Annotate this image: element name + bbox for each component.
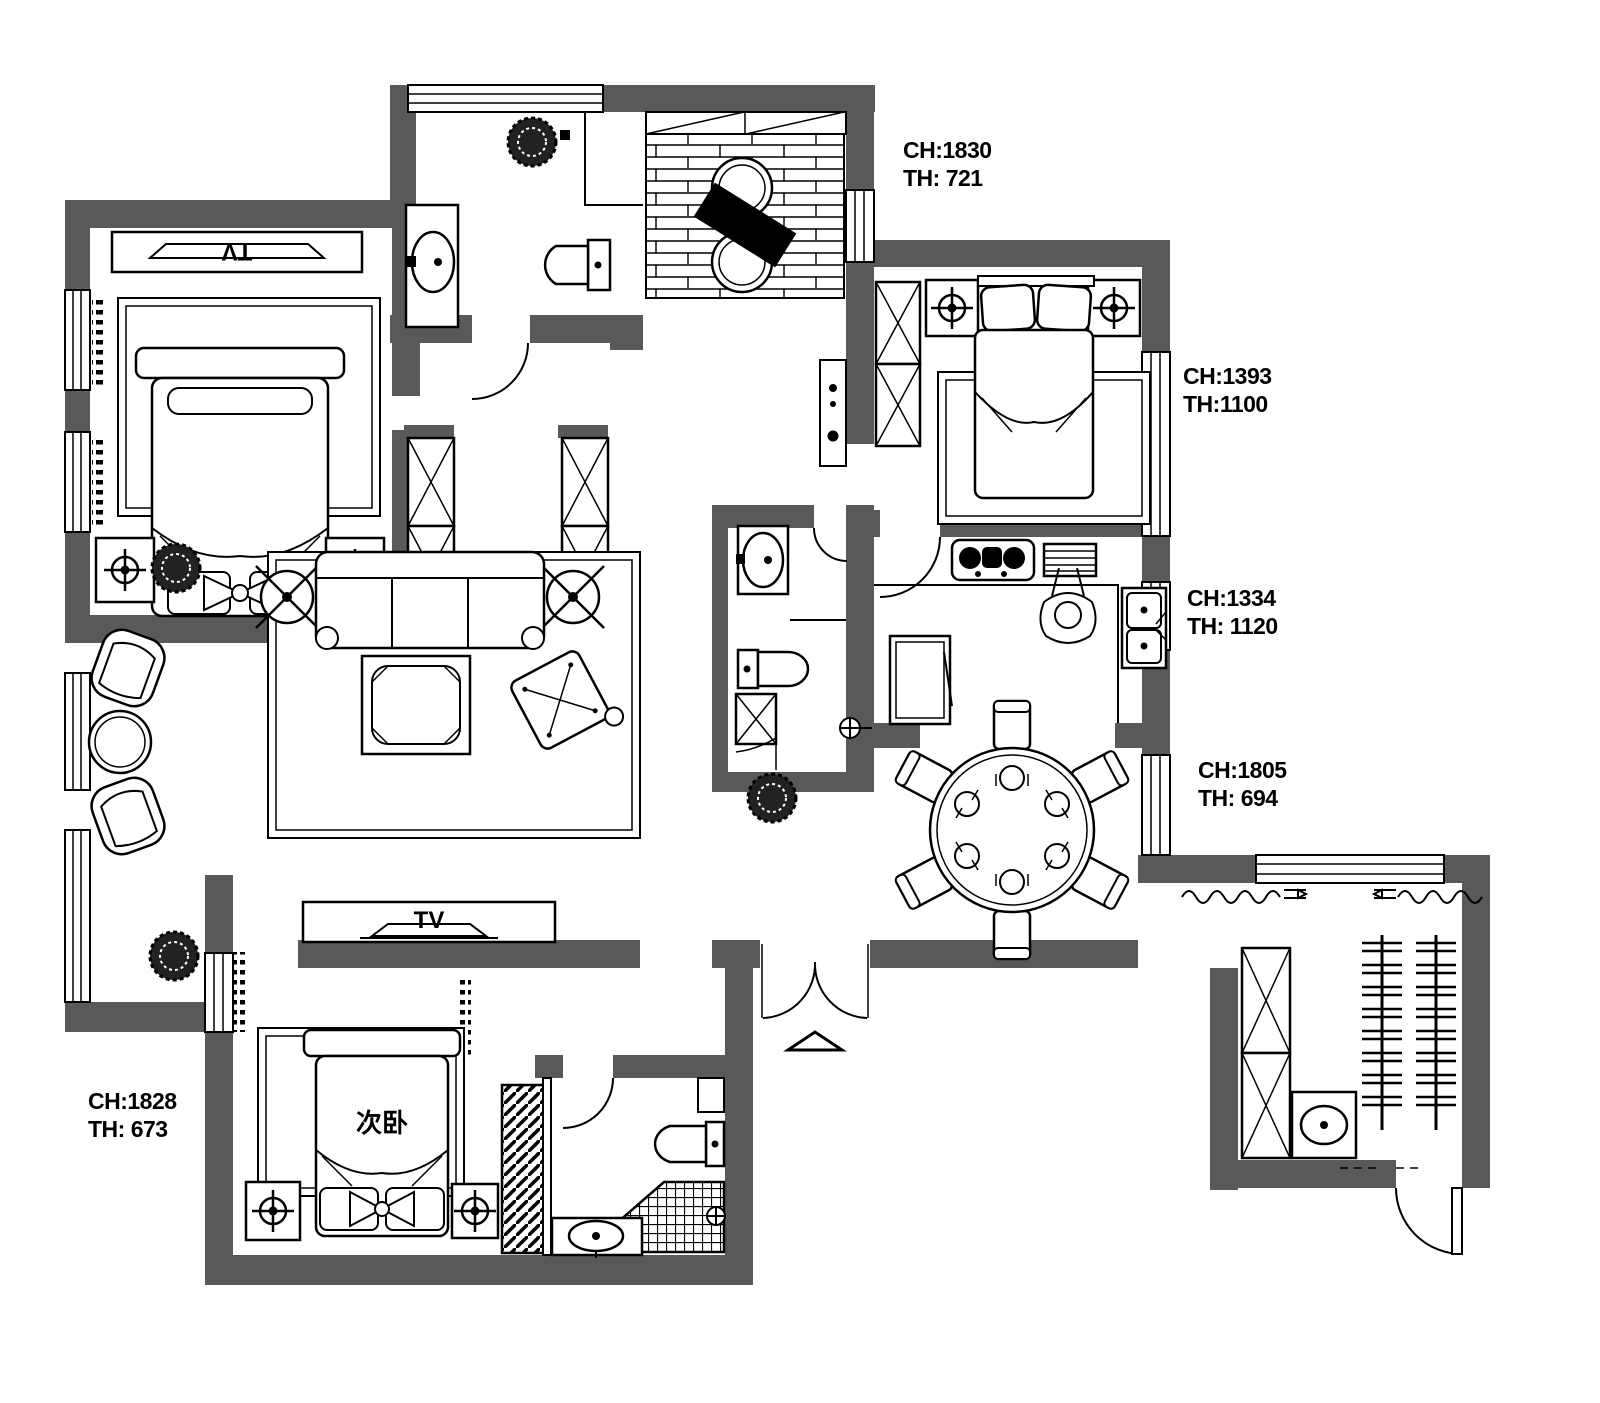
tv-label-living: TV [414, 907, 445, 934]
floor-plan-page: CH:1830 TH: 721 CH:1393 TH:1100 CH:1334 … [0, 0, 1600, 1403]
kitchen [874, 540, 1166, 724]
svg-text:CH:1393: CH:1393 [1183, 363, 1272, 389]
nightstand-left [926, 280, 978, 336]
plant-icon [150, 932, 198, 980]
sink-cabinet [552, 1218, 642, 1258]
window [65, 830, 90, 1002]
round-side-table [89, 711, 151, 773]
room-label-secondary-bedroom: 次卧 [356, 1108, 408, 1138]
double-door [760, 942, 870, 1050]
radiator [1182, 890, 1306, 903]
window [408, 85, 603, 112]
secondary-bedroom [246, 1028, 544, 1253]
shoe-rack [1416, 935, 1456, 1130]
curtain-symbol [92, 295, 103, 387]
dim-label: CH:1805 TH: 694 [1198, 757, 1287, 811]
door-arc-bottom-bathroom [563, 1078, 613, 1128]
window [65, 673, 90, 790]
window [1142, 755, 1170, 855]
stove-icon [952, 540, 1034, 580]
deck-glazing [646, 112, 846, 134]
faucet-icon [560, 130, 570, 140]
door-arc-top-bathroom [472, 343, 528, 399]
shoe-rack [1362, 935, 1402, 1130]
sink-cabinet [1292, 1092, 1356, 1158]
svg-text:TH: 721: TH: 721 [903, 165, 983, 191]
partition-line [585, 112, 643, 205]
window [1256, 855, 1444, 883]
svg-text:CH:1805: CH:1805 [1198, 757, 1287, 783]
svg-text:CH:1830: CH:1830 [903, 137, 992, 163]
svg-text:CH:1334: CH:1334 [1187, 585, 1276, 611]
floor-plan: CH:1830 TH: 721 CH:1393 TH:1100 CH:1334 … [0, 0, 1600, 1403]
leisure-balcony [646, 134, 844, 298]
top-bathroom [406, 112, 643, 327]
dim-label: CH:1334 TH: 1120 [1187, 585, 1278, 639]
svg-text:TH:1100: TH:1100 [1183, 391, 1268, 417]
tv-label-master: TV [222, 238, 253, 265]
svg-text:TH: 673: TH: 673 [88, 1116, 168, 1142]
lamp-table [256, 566, 318, 628]
nightstand-left [246, 1182, 300, 1240]
window [205, 953, 233, 1032]
toilet-icon [545, 240, 610, 290]
nightstand-left [96, 538, 154, 602]
window [65, 432, 90, 532]
dim-label: CH:1393 TH:1100 [1183, 363, 1272, 417]
svg-text:TH: 1120: TH: 1120 [1187, 613, 1278, 639]
kitchen-sink-icon [1122, 588, 1166, 668]
intercom-panel [820, 360, 846, 466]
fridge-cabinet [890, 636, 952, 724]
wardrobe-hanging [502, 1085, 544, 1253]
sink-cabinet [736, 526, 788, 594]
toilet-icon [655, 1122, 724, 1166]
plant-icon [152, 544, 200, 592]
toilet-icon [738, 650, 808, 688]
cabinet-xbox [736, 694, 776, 744]
coffee-table [362, 656, 470, 754]
nightstand-right [452, 1184, 498, 1238]
dining-chair [994, 701, 1030, 749]
shelf [698, 1078, 724, 1112]
partition-wall [543, 1078, 551, 1255]
door-arc-bedroom2 [880, 537, 940, 597]
svg-text:TH: 694: TH: 694 [1198, 785, 1278, 811]
sofa [316, 552, 544, 649]
bottom-bathroom [543, 1078, 725, 1258]
armchair [86, 772, 170, 860]
dim-label: CH:1830 TH: 721 [903, 137, 992, 191]
dining-area [894, 701, 1129, 959]
bed-2 [975, 276, 1094, 498]
lamp-table [542, 566, 604, 628]
entry-closet [1242, 948, 1290, 1158]
plant-icon [508, 118, 556, 166]
dining-chair [994, 911, 1030, 959]
svg-text:CH:1828: CH:1828 [88, 1088, 177, 1114]
range-hood-icon [1044, 544, 1096, 576]
sink-cabinet [406, 205, 458, 327]
nightstand-right [1088, 280, 1140, 336]
curtain-symbol [92, 437, 103, 529]
wardrobe [876, 282, 920, 446]
window [65, 290, 90, 390]
dim-label: CH:1828 TH: 673 [88, 1088, 177, 1142]
curtain-symbol [234, 952, 245, 1032]
door-arc-middle-bathroom [814, 528, 847, 561]
person-figure [1040, 568, 1095, 643]
plant-icon [748, 774, 796, 822]
window [846, 190, 874, 262]
